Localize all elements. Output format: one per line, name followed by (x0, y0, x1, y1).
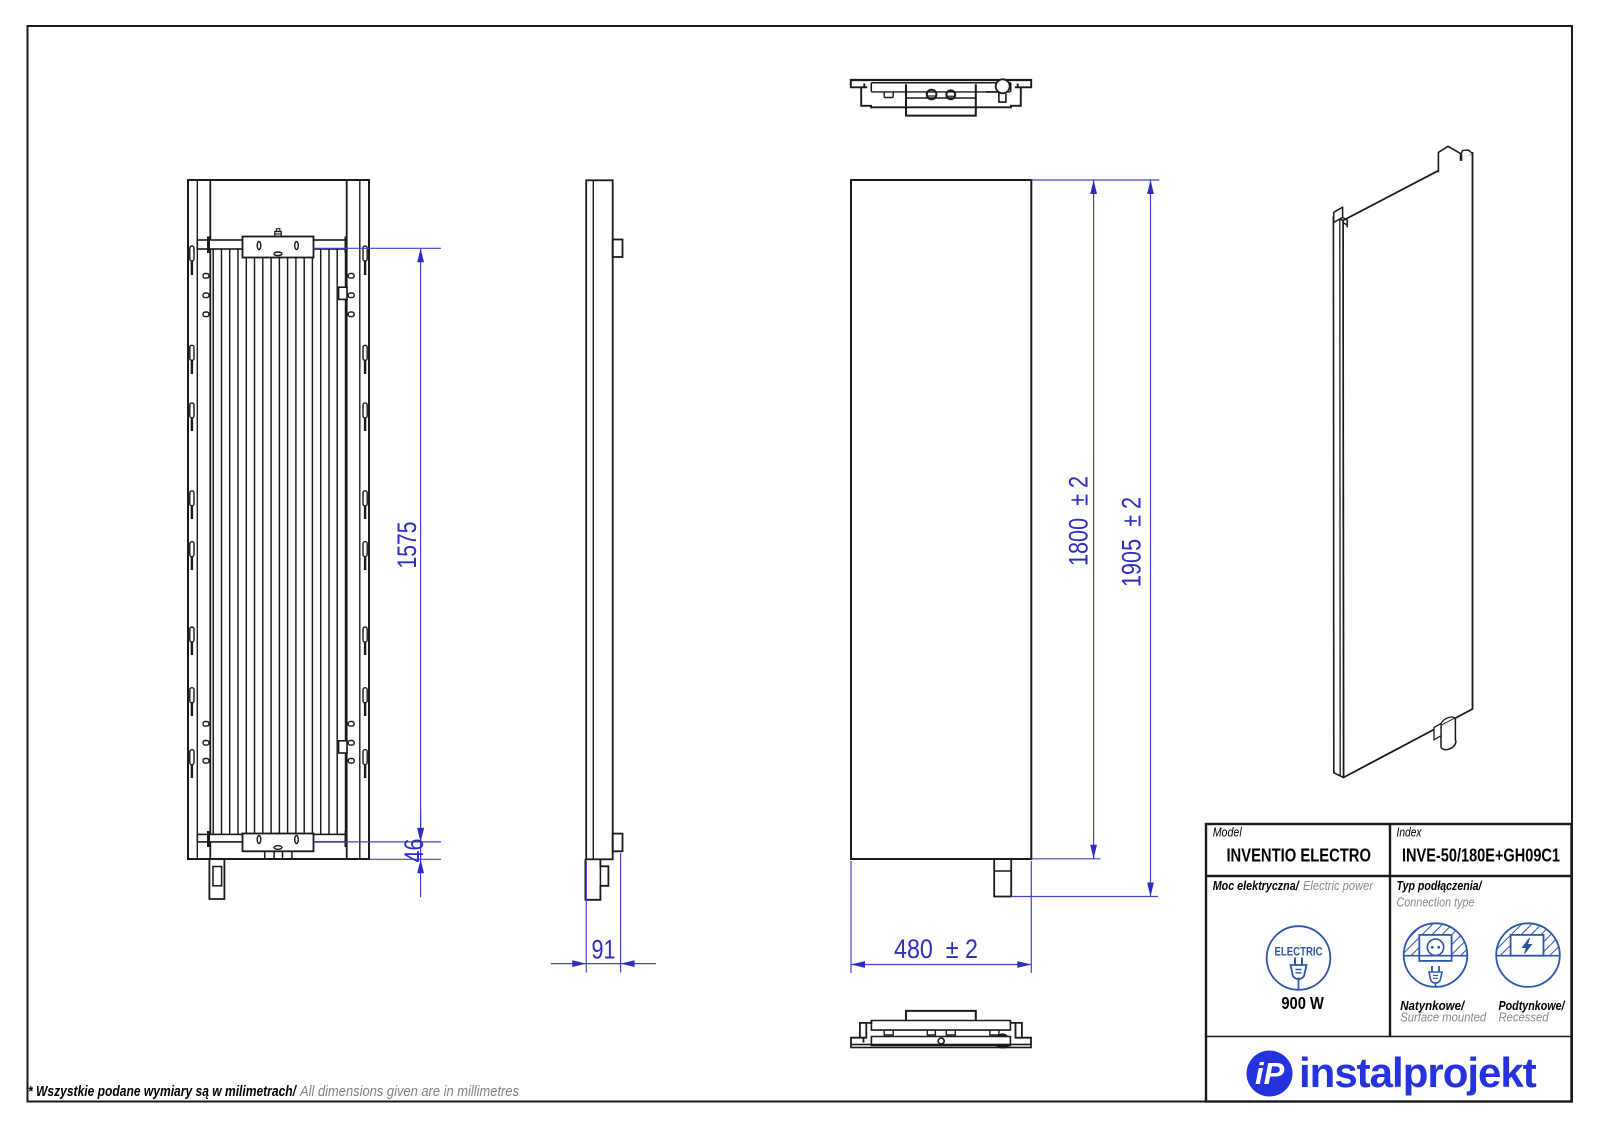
svg-text:900 W: 900 W (1281, 993, 1324, 1013)
svg-text:INVENTIO ELECTRO: INVENTIO ELECTRO (1226, 845, 1371, 866)
svg-text:instalprojekt: instalprojekt (1299, 1049, 1537, 1096)
svg-text:Model: Model (1213, 826, 1243, 840)
svg-text:* Wszystkie podane wymiary są: * Wszystkie podane wymiary są w milimetr… (28, 1083, 297, 1100)
svg-text:INVE-50/180E+GH09C1: INVE-50/180E+GH09C1 (1402, 845, 1560, 866)
svg-text:Connection type: Connection type (1397, 895, 1475, 910)
svg-text:Surface mounted: Surface mounted (1400, 1010, 1487, 1025)
svg-text:Typ podłączenia/: Typ podłączenia/ (1397, 878, 1483, 893)
svg-text:Index: Index (1397, 826, 1423, 840)
svg-text:1575: 1575 (392, 522, 422, 569)
svg-text:Recessed: Recessed (1499, 1010, 1550, 1025)
svg-text:Moc elektryczna/: Moc elektryczna/ (1213, 878, 1300, 893)
svg-text:All dimensions given are in mi: All dimensions given are in millimetres (299, 1083, 519, 1100)
svg-text:1800 ± 2: 1800 ± 2 (1064, 476, 1094, 566)
svg-text:46: 46 (399, 839, 429, 863)
svg-text:ELECTRIC: ELECTRIC (1275, 946, 1323, 958)
svg-text:1905 ± 2: 1905 ± 2 (1117, 497, 1147, 587)
svg-text:iP: iP (1255, 1056, 1285, 1091)
svg-text:480 ± 2: 480 ± 2 (894, 934, 978, 964)
svg-text:Electric power: Electric power (1303, 878, 1374, 893)
svg-text:91: 91 (592, 935, 616, 965)
